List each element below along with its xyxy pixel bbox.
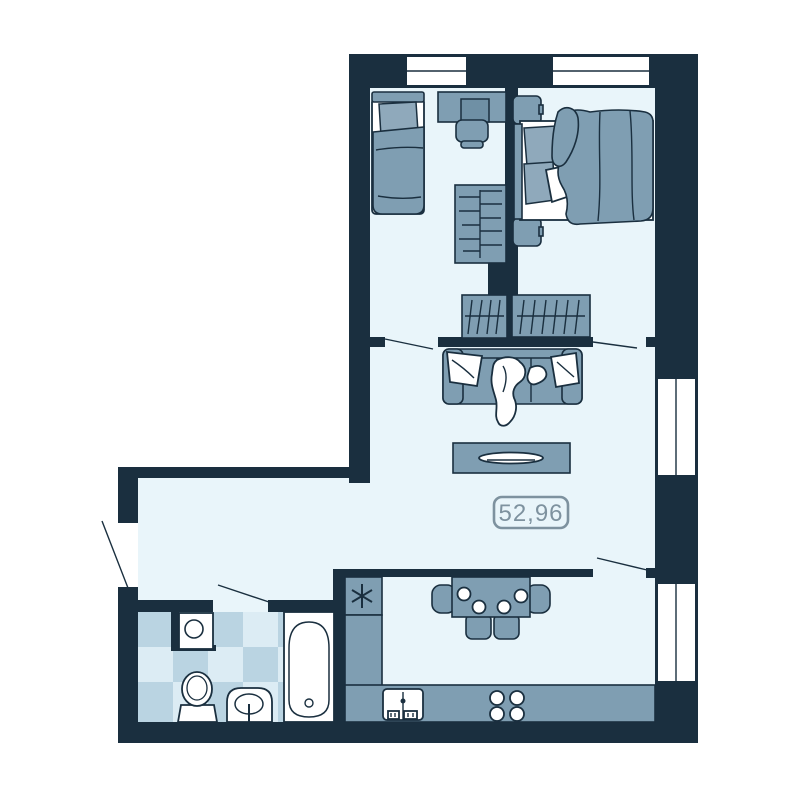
- monitor: [461, 99, 489, 122]
- wall-washer-niche: [171, 612, 179, 650]
- stove-burner: [490, 691, 504, 705]
- wash-basin: [227, 688, 272, 722]
- kitchen-sink: [383, 689, 423, 720]
- headboard: [372, 92, 424, 102]
- single-bed: [372, 92, 424, 214]
- chair-back: [461, 141, 483, 148]
- plate: [515, 590, 528, 603]
- washing-machine: [179, 613, 213, 649]
- wall-partition-block: [488, 263, 518, 295]
- blanket: [373, 127, 424, 214]
- bathtub: [284, 612, 334, 722]
- wall-left-lower: [118, 587, 138, 722]
- faucet: [401, 699, 406, 704]
- serving-plate: [479, 453, 543, 464]
- coffee-table: [453, 443, 570, 473]
- fridge: [345, 577, 382, 615]
- desk-chair: [456, 120, 488, 148]
- wall-kitchen-top: [333, 569, 593, 577]
- wall-stub-right: [646, 337, 655, 347]
- nightstand-top: [513, 96, 543, 124]
- stove-burner: [510, 691, 524, 705]
- floor-plan: 52,96: [0, 0, 800, 800]
- wall-bathroom-top-left: [138, 600, 213, 612]
- window-living-room: [657, 378, 696, 476]
- drum: [185, 620, 203, 638]
- drain: [305, 699, 313, 707]
- stove-burner: [490, 707, 504, 721]
- area-value: 52,96: [498, 500, 563, 527]
- tank: [178, 705, 217, 722]
- hanging-wardrobe-right: [512, 295, 590, 337]
- headboard: [514, 124, 522, 219]
- plate: [498, 601, 511, 614]
- wall-bathroom-top-right: [268, 600, 333, 612]
- window-bedroom-2: [552, 56, 650, 86]
- door-swing-entrance: [102, 521, 128, 588]
- wall-stub-left: [370, 337, 385, 347]
- knob: [539, 227, 543, 236]
- wall-stub-kitchen: [646, 568, 655, 578]
- shelf-wardrobe: [455, 185, 506, 263]
- desk: [438, 92, 506, 122]
- plate: [458, 588, 471, 601]
- wall-hallway-top: [118, 467, 370, 478]
- plate: [473, 601, 486, 614]
- hanging-wardrobe-left: [462, 295, 507, 338]
- window-bedroom-1: [406, 56, 467, 86]
- window-kitchen: [657, 583, 696, 682]
- wall-bedrooms-left: [349, 54, 370, 483]
- area-label: 52,96: [494, 497, 568, 528]
- nightstand-bottom: [513, 218, 543, 246]
- stove-burner: [510, 707, 524, 721]
- knob: [539, 105, 543, 114]
- double-bed: [514, 108, 653, 225]
- wall-bottom: [118, 722, 698, 743]
